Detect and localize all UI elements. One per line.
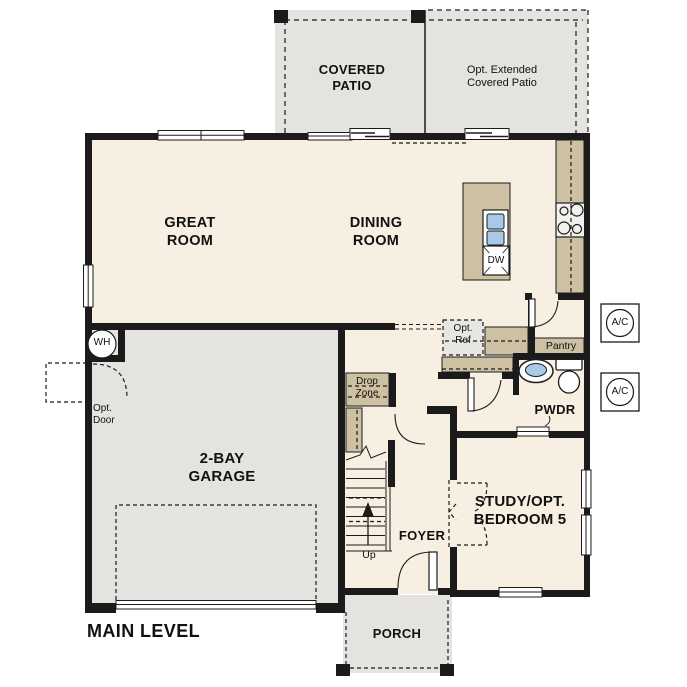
- hall-cabinet: [346, 408, 362, 452]
- ac-label: A/C: [612, 317, 629, 329]
- covered-patio-label: COVEREDPATIO: [319, 62, 385, 94]
- porch-post: [336, 664, 350, 676]
- water-heater-label: WH: [94, 337, 111, 349]
- porch-label: PORCH: [373, 626, 421, 642]
- opt-ref-label: Opt.Ref: [454, 323, 473, 347]
- opt-extended-patio-label: Opt. ExtendedCovered Patio: [467, 64, 537, 91]
- dining-room-label: DININGROOM: [350, 215, 403, 250]
- garage-label: 2-BAYGARAGE: [188, 450, 255, 487]
- powder-label: PWDR: [535, 402, 576, 418]
- great-room-label: GREATROOM: [164, 215, 215, 250]
- patio-slider: [350, 129, 390, 140]
- toilet: [556, 359, 582, 393]
- up-label: Up: [362, 549, 375, 562]
- plan-title: MAIN LEVEL: [87, 621, 200, 643]
- patio-slider: [465, 129, 509, 140]
- opt-door-label: Opt.Door: [93, 403, 115, 427]
- opt-door-stoop: [46, 363, 87, 402]
- porch-post: [440, 664, 454, 676]
- pantry-label: Pantry: [546, 340, 576, 353]
- dishwasher-label: DW: [488, 255, 505, 267]
- ref-counter: [485, 327, 528, 355]
- study-label: STUDY/OPT.BEDROOM 5: [474, 493, 567, 530]
- drop-zone-label: DropZone: [356, 376, 379, 400]
- ac-label: A/C: [612, 386, 629, 398]
- mud-counter: [442, 357, 513, 372]
- floor-plan: COVEREDPATIO Opt. ExtendedCovered Patio …: [0, 0, 687, 687]
- foyer-label: FOYER: [399, 528, 445, 544]
